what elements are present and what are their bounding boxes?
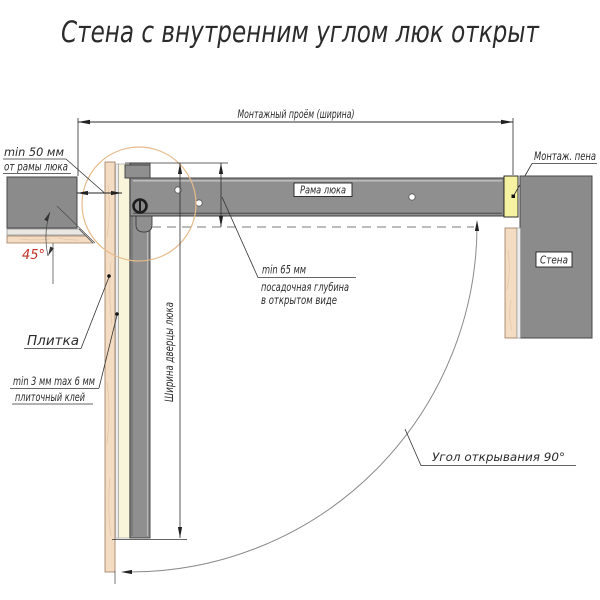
depth-label-line3: в открытом виде <box>261 293 337 307</box>
depth-label-line1: min 65 мм <box>262 263 306 277</box>
frame-top-block <box>125 165 150 178</box>
frame-label: Рама люка <box>300 185 346 197</box>
angle-45-label: 45° <box>22 248 45 263</box>
right-wall-tile <box>505 228 517 338</box>
left-wall-tile <box>7 236 93 243</box>
frame-hole-2 <box>196 200 202 206</box>
hinge-knuckle <box>136 216 152 232</box>
opening-angle-label: Угол открывания 90° <box>432 450 565 464</box>
drawing-title: Стена с внутренним углом люк открыт <box>61 15 540 49</box>
frame-hole-3 <box>409 194 415 200</box>
min50-label-line2: от рамы люка <box>4 160 68 174</box>
tile-label: Плитка <box>27 334 79 349</box>
adhesive-label-line2: плиточный клей <box>15 390 85 404</box>
mounting-opening-label: Монтажный проём (ширина) <box>238 107 355 121</box>
door-backer-layer <box>116 164 119 538</box>
min50-label-line1: min 50 мм <box>4 145 64 159</box>
adhesive-label-line1: min 3 мм max 6 мм <box>13 374 95 388</box>
left-wall <box>7 177 77 228</box>
door-tile <box>105 162 115 572</box>
tile-leader-dot <box>107 274 111 278</box>
door-width-label: Ширина дверцы люка <box>162 302 176 402</box>
wall-label: Стена <box>540 254 568 267</box>
adhesive-leader-dot <box>115 312 119 316</box>
foam-strip <box>504 176 518 217</box>
foam-label: Монтаж. пена <box>534 149 596 163</box>
depth-label-line2: посадочная глубина <box>261 280 349 294</box>
technical-drawing-page: Стена с внутренним углом люк открыт 45° <box>0 0 600 600</box>
right-wall-adhesive-layer <box>517 228 521 338</box>
door-adhesive-layer <box>119 164 130 538</box>
drawing-canvas: Стена с внутренним углом люк открыт 45° <box>0 0 600 600</box>
